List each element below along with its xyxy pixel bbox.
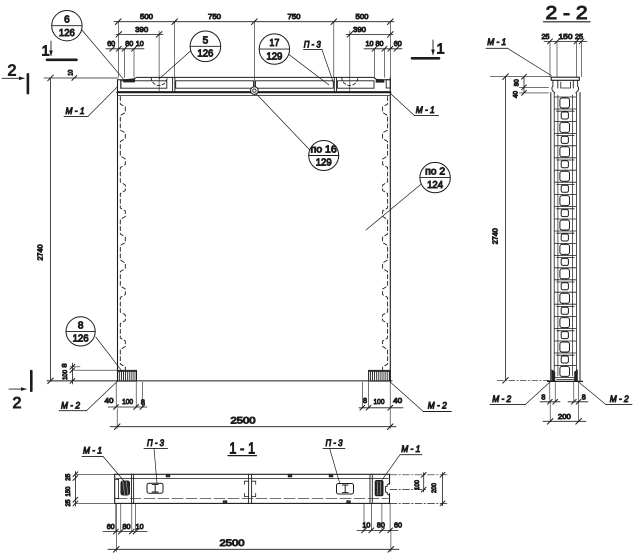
svg-text:M - 1: M - 1 (416, 105, 435, 115)
svg-text:150: 150 (559, 32, 573, 41)
svg-text:40: 40 (105, 396, 114, 405)
svg-text:126: 126 (197, 49, 213, 60)
svg-text:126: 126 (59, 28, 75, 39)
svg-text:100: 100 (374, 397, 385, 406)
svg-text:5: 5 (203, 35, 209, 46)
svg-text:2 - 2: 2 - 2 (546, 3, 588, 23)
svg-text:129: 129 (266, 51, 282, 62)
svg-text:2740: 2740 (36, 245, 45, 261)
svg-text:10: 10 (136, 39, 144, 48)
svg-text:390: 390 (353, 25, 366, 34)
svg-text:60: 60 (107, 522, 115, 531)
svg-text:200: 200 (431, 483, 438, 493)
svg-text:2: 2 (8, 63, 17, 80)
svg-text:25: 25 (65, 473, 72, 480)
svg-text:150: 150 (65, 486, 72, 496)
svg-text:40: 40 (513, 91, 520, 98)
svg-text:124: 124 (427, 180, 443, 191)
svg-text:750: 750 (208, 12, 221, 21)
svg-text:2500: 2500 (231, 415, 256, 425)
svg-text:6: 6 (64, 15, 70, 26)
svg-text:200: 200 (558, 412, 571, 421)
svg-text:500: 500 (356, 12, 369, 21)
svg-text:390: 390 (135, 25, 148, 34)
svg-text:1: 1 (41, 43, 49, 60)
svg-text:126: 126 (73, 334, 89, 345)
svg-text:25: 25 (542, 32, 550, 41)
svg-text:M - 2: M - 2 (428, 401, 447, 411)
svg-text:10: 10 (362, 521, 370, 530)
svg-text:80: 80 (123, 522, 131, 531)
svg-text:10: 10 (68, 69, 75, 75)
svg-text:129: 129 (316, 158, 332, 169)
svg-text:П - 3: П - 3 (304, 39, 321, 49)
svg-text:2500: 2500 (220, 538, 245, 548)
svg-text:100: 100 (62, 370, 69, 380)
svg-text:по 2: по 2 (425, 167, 445, 178)
svg-text:60: 60 (394, 521, 402, 530)
svg-text:1: 1 (436, 40, 444, 57)
svg-text:П - 3: П - 3 (326, 438, 343, 448)
svg-text:8: 8 (582, 393, 586, 402)
svg-text:100: 100 (122, 397, 133, 406)
svg-text:100: 100 (414, 480, 421, 490)
svg-text:25: 25 (65, 499, 72, 506)
svg-text:2: 2 (13, 395, 22, 412)
svg-text:по 16: по 16 (311, 145, 337, 156)
svg-text:10: 10 (366, 39, 374, 48)
svg-text:M - 1: M - 1 (487, 37, 506, 47)
svg-text:500: 500 (140, 12, 153, 21)
svg-text:750: 750 (288, 12, 301, 21)
svg-text:80: 80 (377, 521, 385, 530)
svg-text:8: 8 (62, 363, 69, 367)
svg-text:8: 8 (541, 393, 545, 402)
svg-text:10: 10 (136, 522, 144, 531)
svg-text:M - 1: M - 1 (83, 446, 102, 456)
svg-text:M - 1: M - 1 (66, 106, 85, 116)
svg-text:M - 2: M - 2 (61, 400, 80, 410)
svg-text:80: 80 (514, 79, 521, 86)
svg-text:2740: 2740 (491, 228, 500, 244)
svg-text:8: 8 (78, 320, 84, 331)
svg-text:8: 8 (363, 396, 367, 405)
svg-text:40: 40 (393, 396, 402, 405)
svg-text:17: 17 (269, 38, 279, 49)
svg-text:M - 1: M - 1 (401, 444, 420, 454)
svg-text:П - 3: П - 3 (147, 438, 164, 448)
svg-text:M - 2: M - 2 (492, 394, 511, 404)
svg-text:1 - 1: 1 - 1 (229, 441, 255, 458)
svg-text:M - 2: M - 2 (610, 394, 629, 404)
